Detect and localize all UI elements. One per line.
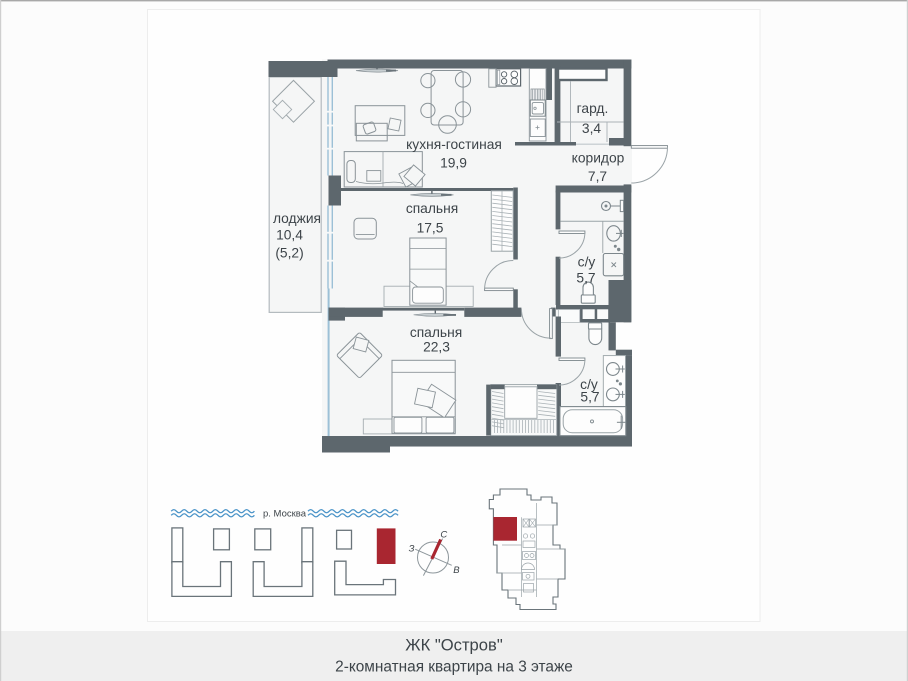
svg-text:гард.: гард.: [577, 101, 609, 116]
svg-text:коридор: коридор: [572, 150, 625, 165]
svg-text:2-комнатная квартира на 3 этаж: 2-комнатная квартира на 3 этаже: [335, 659, 573, 676]
svg-text:спальня: спальня: [406, 201, 458, 216]
svg-text:р. Москва: р. Москва: [263, 509, 307, 520]
svg-text:3,4: 3,4: [582, 121, 602, 136]
svg-text:В: В: [453, 565, 460, 576]
svg-text:19,9: 19,9: [440, 156, 467, 171]
svg-text:С: С: [440, 529, 447, 540]
svg-text:10,4: 10,4: [276, 227, 303, 242]
svg-text:с/у: с/у: [578, 254, 596, 269]
svg-text:ЖК "Остров": ЖК "Остров": [405, 636, 503, 655]
svg-text:(5,2): (5,2): [275, 245, 303, 260]
svg-text:кухня-гостиная: кухня-гостиная: [406, 137, 502, 152]
svg-text:спальня: спальня: [410, 325, 462, 340]
svg-text:17,5: 17,5: [417, 221, 444, 236]
svg-text:5,7: 5,7: [580, 389, 599, 404]
svg-text:5,7: 5,7: [576, 270, 595, 285]
svg-text:лоджия: лоджия: [273, 211, 321, 226]
svg-text:7,7: 7,7: [588, 169, 607, 184]
svg-text:З: З: [409, 543, 415, 554]
svg-text:22,3: 22,3: [423, 340, 450, 355]
